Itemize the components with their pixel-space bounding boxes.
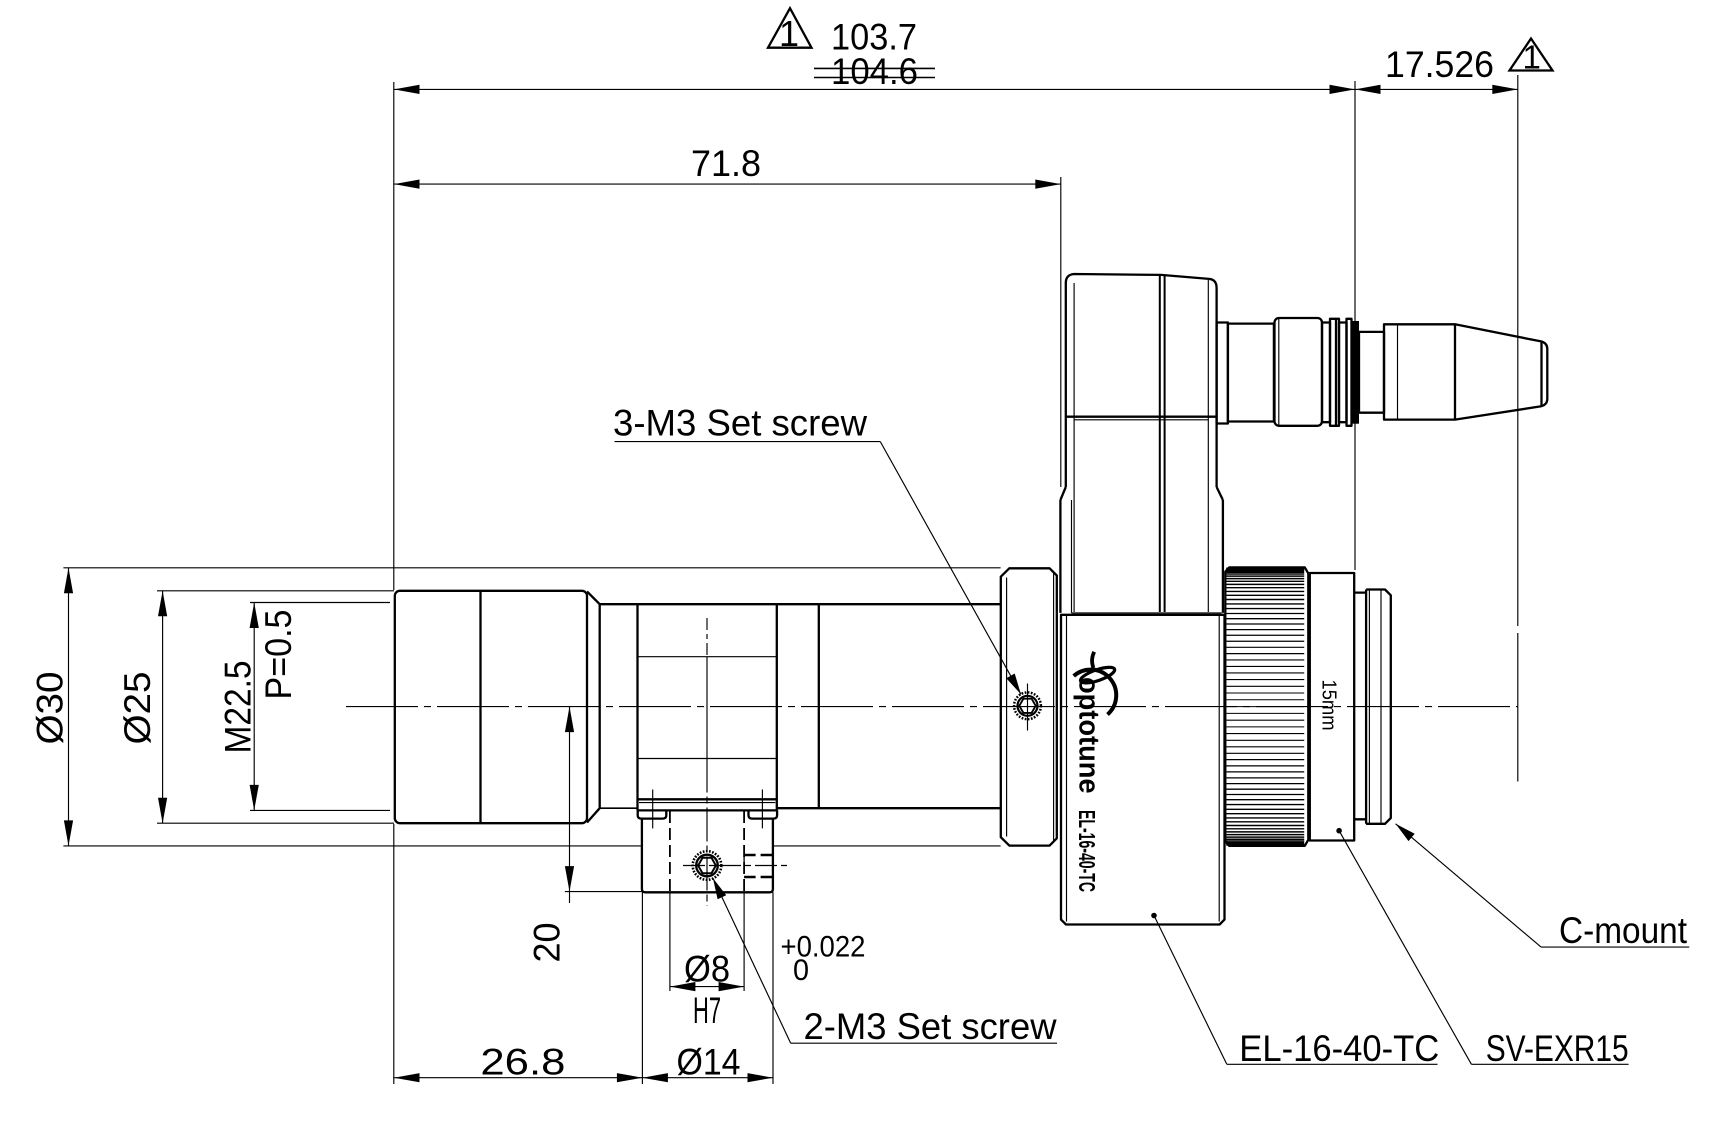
svg-text:SV-EXR15: SV-EXR15 (1486, 1028, 1629, 1069)
svg-text:C-mount: C-mount (1559, 910, 1688, 951)
svg-text:EL-16-40-TC: EL-16-40-TC (1239, 1028, 1439, 1069)
svg-text:15mm: 15mm (1318, 680, 1340, 731)
svg-text:Ø8: Ø8 (684, 949, 730, 990)
svg-text:Ø14: Ø14 (677, 1042, 741, 1083)
svg-text:H7: H7 (693, 990, 721, 1031)
svg-text:M22.5: M22.5 (218, 661, 259, 754)
svg-text:1: 1 (779, 13, 799, 54)
svg-text:104.6: 104.6 (831, 51, 918, 92)
svg-text:Ø25: Ø25 (117, 672, 158, 745)
svg-text:20: 20 (527, 923, 568, 963)
svg-text:optotune: optotune (1073, 677, 1105, 794)
svg-text:26.8: 26.8 (480, 1042, 565, 1083)
svg-text:Ø30: Ø30 (30, 672, 71, 745)
svg-text:2-M3 Set screw: 2-M3 Set screw (804, 1006, 1057, 1047)
svg-text:71.8: 71.8 (691, 143, 761, 184)
svg-text:3-M3 Set screw: 3-M3 Set screw (613, 403, 867, 444)
svg-text:EL-16-40-TC: EL-16-40-TC (1074, 810, 1100, 892)
svg-text:0: 0 (793, 954, 809, 987)
svg-text:17.526: 17.526 (1385, 44, 1494, 85)
svg-text:P=0.5: P=0.5 (258, 610, 299, 700)
svg-text:1: 1 (1523, 39, 1541, 76)
